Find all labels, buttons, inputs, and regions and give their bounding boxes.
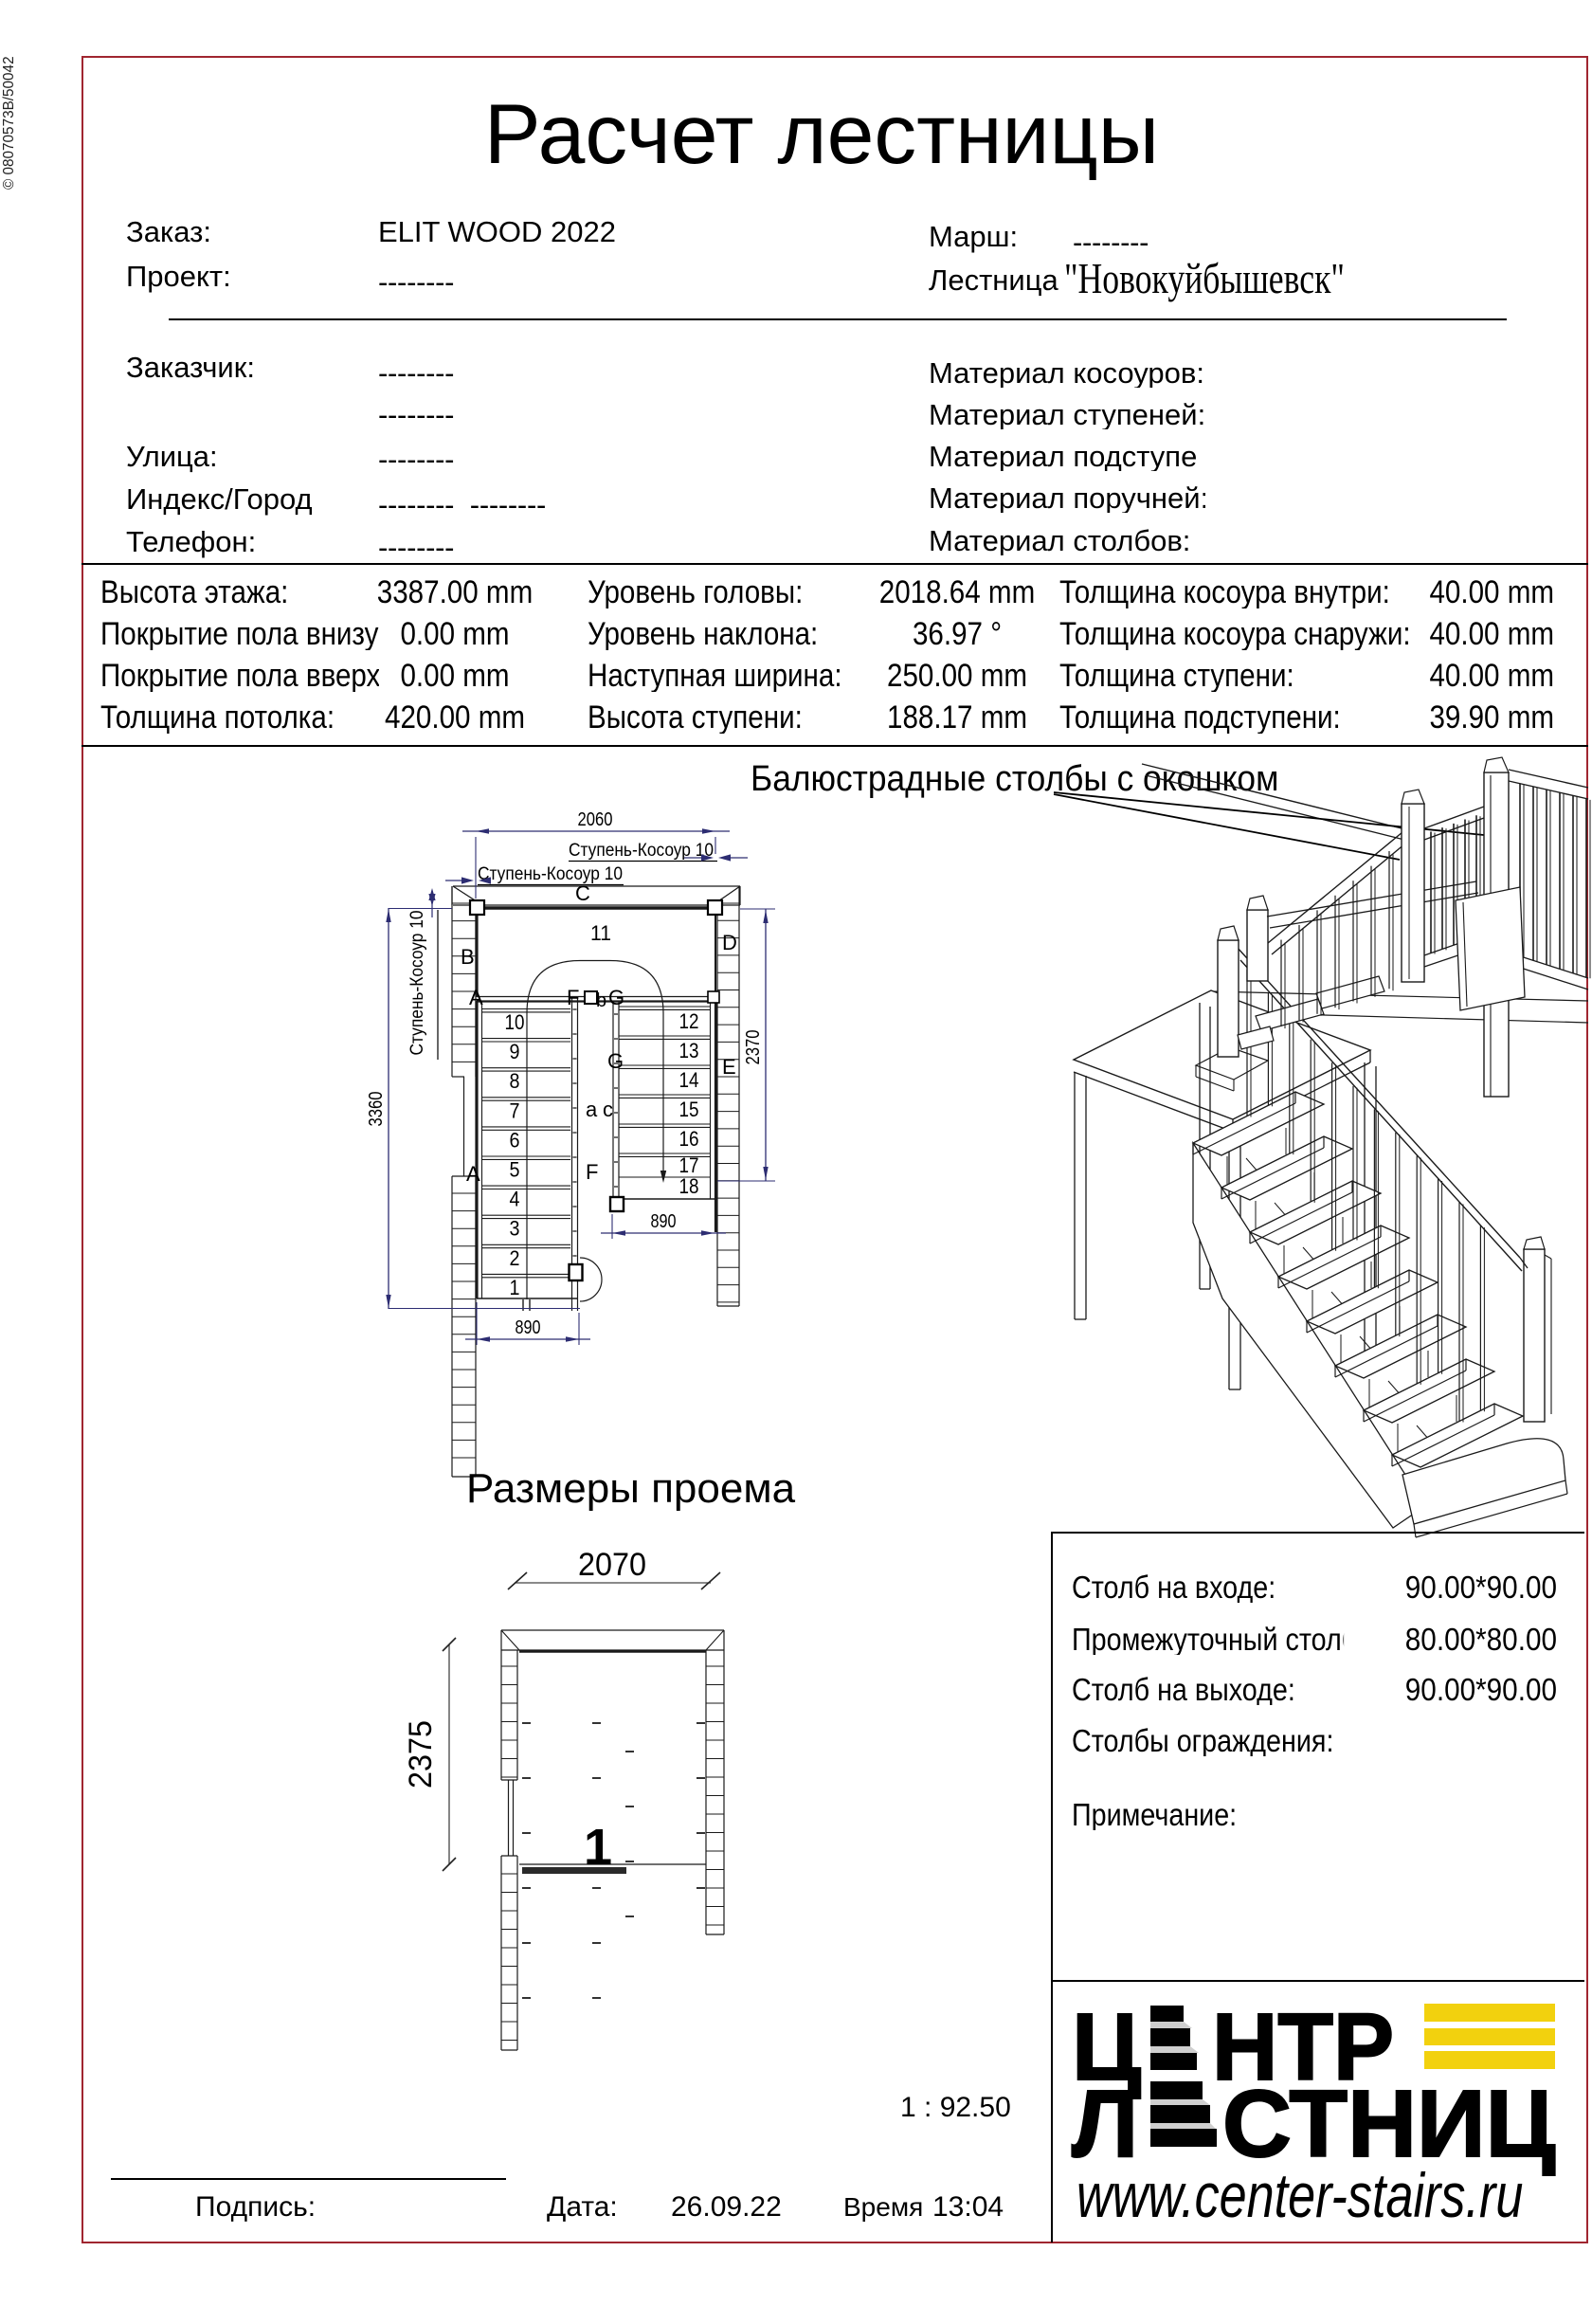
svg-text:3360: 3360: [365, 1092, 387, 1127]
svg-text:G: G: [607, 1049, 624, 1073]
svg-text:c: c: [603, 1098, 613, 1121]
svg-text:14: 14: [679, 1068, 699, 1092]
svg-text:18: 18: [679, 1174, 699, 1198]
svg-text:Ступень-Косоур 10: Ступень-Косоур 10: [478, 863, 623, 884]
svg-text:890: 890: [516, 1316, 541, 1338]
svg-text:C: C: [575, 881, 590, 905]
svg-text:G: G: [608, 986, 624, 1009]
svg-text:890: 890: [651, 1210, 677, 1232]
svg-text:13: 13: [679, 1039, 699, 1062]
svg-text:11: 11: [590, 921, 611, 945]
svg-text:16: 16: [679, 1127, 699, 1151]
svg-text:A: A: [469, 986, 483, 1009]
svg-text:6: 6: [510, 1128, 520, 1152]
svg-text:b: b: [596, 990, 606, 1011]
svg-text:Ступень-Косоур 10: Ступень-Косоур 10: [407, 910, 427, 1055]
svg-text:2370: 2370: [742, 1030, 764, 1065]
svg-text:2: 2: [510, 1246, 520, 1270]
svg-text:2375: 2375: [407, 1720, 439, 1788]
svg-text:10: 10: [505, 1010, 525, 1034]
svg-text:D: D: [722, 931, 737, 954]
svg-text:4: 4: [510, 1188, 520, 1211]
svg-text:2060: 2060: [578, 808, 613, 830]
svg-text:5: 5: [510, 1158, 520, 1182]
svg-text:3: 3: [510, 1217, 520, 1241]
svg-text:7: 7: [510, 1098, 520, 1122]
svg-text:a: a: [586, 1098, 598, 1121]
svg-text:8: 8: [510, 1069, 520, 1093]
svg-text:1: 1: [584, 1819, 612, 1876]
svg-text:A: A: [466, 1162, 480, 1186]
svg-text:9: 9: [510, 1040, 520, 1063]
svg-text:E: E: [722, 1055, 736, 1079]
svg-text:1: 1: [510, 1276, 520, 1299]
svg-text:F: F: [567, 986, 579, 1009]
svg-text:15: 15: [679, 1098, 699, 1121]
svg-text:F: F: [586, 1160, 598, 1184]
svg-text:2070: 2070: [578, 1547, 646, 1583]
svg-text:B: B: [461, 945, 475, 969]
svg-text:12: 12: [679, 1009, 699, 1033]
